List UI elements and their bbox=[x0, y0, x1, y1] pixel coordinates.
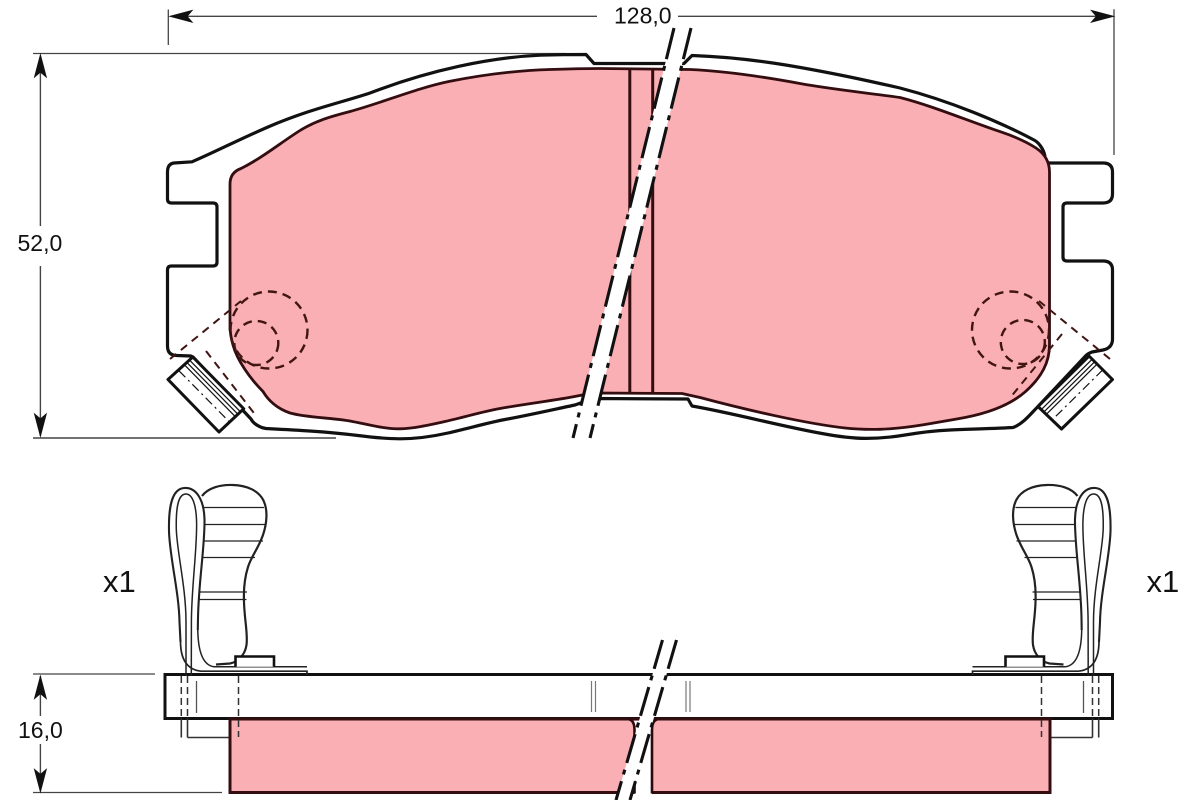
svg-text:128,0: 128,0 bbox=[614, 3, 672, 29]
svg-text:x1: x1 bbox=[1147, 564, 1180, 599]
svg-text:52,0: 52,0 bbox=[18, 230, 63, 256]
svg-text:x1: x1 bbox=[103, 564, 136, 599]
svg-text:16,0: 16,0 bbox=[18, 717, 63, 743]
